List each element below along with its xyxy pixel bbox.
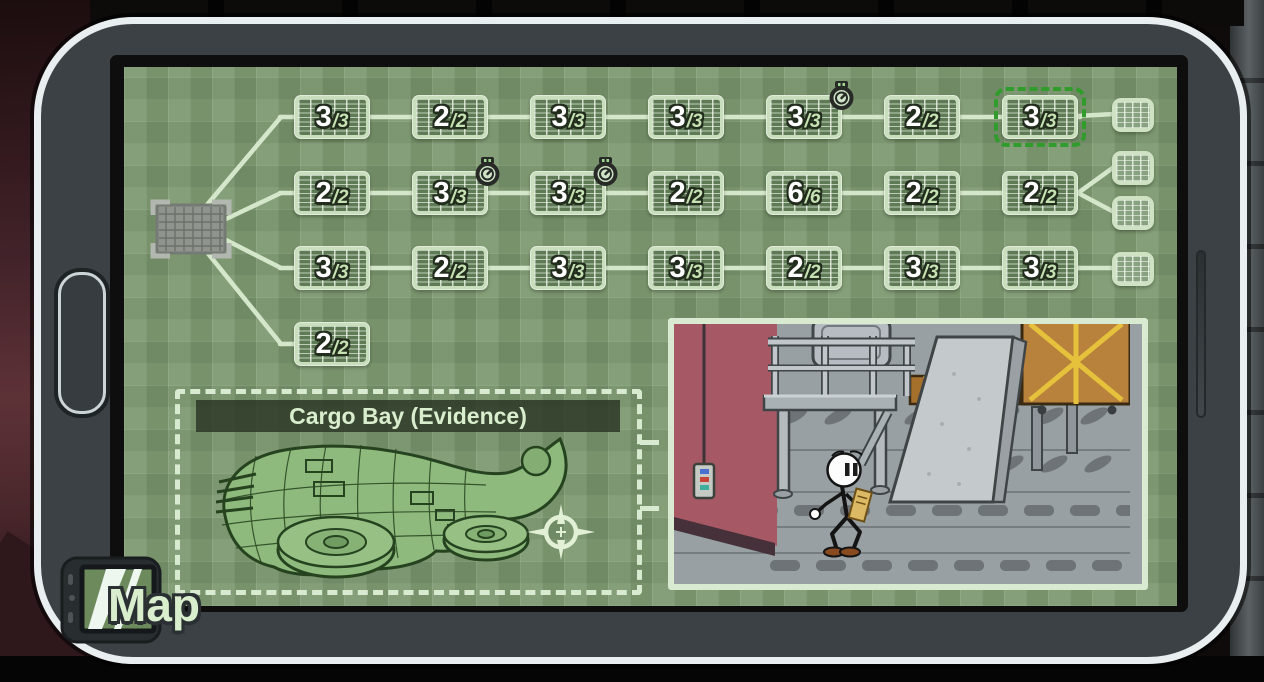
level-node-score: 2/2 — [294, 171, 370, 215]
level-node-score: 2/2 — [294, 322, 370, 366]
level-node[interactable]: 3/3 — [412, 171, 488, 215]
level-node[interactable]: 2/2 — [648, 171, 724, 215]
panel-tick — [640, 506, 659, 511]
start-node[interactable] — [150, 198, 232, 260]
level-preview-scene — [674, 324, 1130, 572]
level-node-score: 6/6 — [766, 171, 842, 215]
level-node-score: 3/3 — [884, 246, 960, 290]
tablet-side-button[interactable] — [58, 272, 106, 414]
level-node[interactable]: 2/2 — [294, 171, 370, 215]
level-node-score: 3/3 — [530, 246, 606, 290]
level-node-grid — [1006, 99, 1074, 135]
level-node[interactable]: 2/2 — [1002, 171, 1078, 215]
power-outlet — [694, 464, 714, 498]
ending-node[interactable] — [1112, 98, 1154, 132]
big-crate — [1022, 324, 1130, 415]
ending-node[interactable] — [1112, 196, 1154, 230]
level-node[interactable]: 3/3 — [530, 171, 606, 215]
level-node[interactable]: 3/3 — [1002, 246, 1078, 290]
level-node-score: 2/2 — [766, 246, 842, 290]
red-wall — [674, 324, 777, 546]
level-node[interactable]: 3/3 — [648, 246, 724, 290]
level-node[interactable]: 2/2 — [412, 95, 488, 139]
level-node-score: 3/3 — [294, 95, 370, 139]
map-screen: 3/32/23/33/33/3 2/23/32/23/3 3/3 2/26/62… — [0, 0, 1264, 682]
level-node-score: 3/3 — [648, 95, 724, 139]
level-node[interactable]: 2/2 — [884, 171, 960, 215]
level-node[interactable]: 3/3 — [294, 95, 370, 139]
tablet-speaker-slot — [1196, 250, 1206, 418]
level-node-score: 3/3 — [1002, 246, 1078, 290]
timer-icon — [592, 156, 619, 187]
level-node[interactable]: 2/2 — [412, 246, 488, 290]
level-node-score: 2/2 — [884, 95, 960, 139]
level-node-score: 2/2 — [1002, 171, 1078, 215]
level-node[interactable]: 3/3 — [884, 246, 960, 290]
ending-node-grid — [1116, 200, 1150, 226]
level-node[interactable]: 3/3 — [294, 246, 370, 290]
ending-node-grid — [1116, 155, 1150, 181]
level-node[interactable]: 2/2 — [884, 95, 960, 139]
level-node-selected[interactable]: 3/3 — [1002, 95, 1078, 139]
map-button[interactable]: Map — [60, 554, 310, 664]
ending-node[interactable] — [1112, 151, 1154, 185]
level-node-score: 2/2 — [412, 246, 488, 290]
level-node[interactable]: 3/3 — [530, 95, 606, 139]
level-node[interactable]: 2/2 — [294, 322, 370, 366]
level-preview-panel — [668, 318, 1148, 590]
panel-tick — [640, 440, 659, 445]
timer-icon — [828, 80, 855, 111]
background-room-top — [90, 0, 1244, 26]
cargo-bay-title: Cargo Bay (Evidence) — [196, 400, 620, 432]
map-button-label: Map — [108, 578, 200, 632]
level-node[interactable]: 2/2 — [766, 246, 842, 290]
level-node-score: 3/3 — [530, 95, 606, 139]
level-node-score: 2/2 — [884, 171, 960, 215]
timer-icon — [474, 156, 501, 187]
level-node-score: 3/3 — [1002, 95, 1078, 139]
ending-node-grid — [1116, 102, 1150, 128]
level-node-score: 2/2 — [412, 95, 488, 139]
level-node[interactable]: 6/6 — [766, 171, 842, 215]
ending-node-grid — [1116, 256, 1150, 282]
level-node[interactable]: 3/3 — [530, 246, 606, 290]
level-node-score: 2/2 — [648, 171, 724, 215]
level-node-score: 3/3 — [648, 246, 724, 290]
level-node[interactable]: 3/3 — [648, 95, 724, 139]
level-node-score: 3/3 — [294, 246, 370, 290]
ending-node[interactable] — [1112, 252, 1154, 286]
level-node[interactable]: 3/3 — [766, 95, 842, 139]
